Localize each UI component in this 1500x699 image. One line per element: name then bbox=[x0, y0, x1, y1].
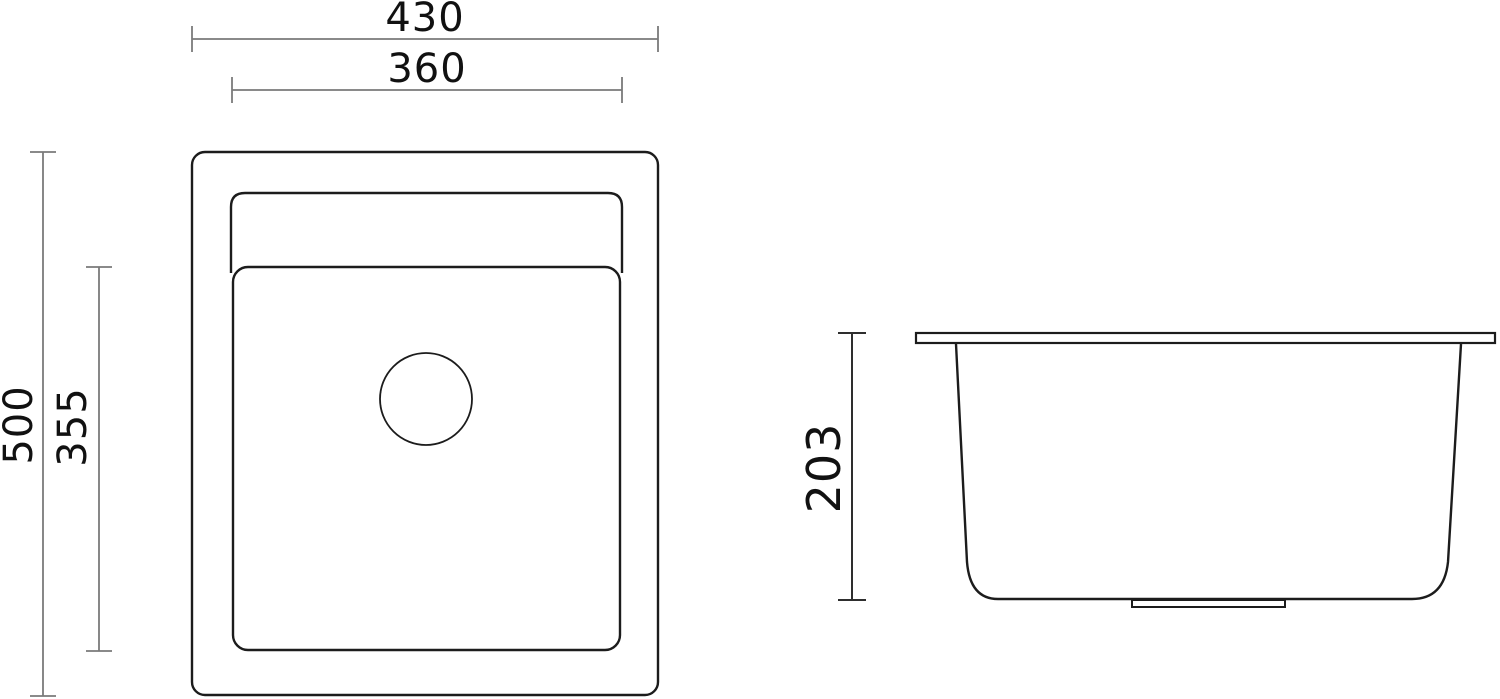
dimension-outer-width: 430 bbox=[192, 0, 658, 52]
dimension-inner-height: 355 bbox=[50, 267, 112, 651]
side-view-drain-outlet bbox=[1132, 600, 1285, 607]
dim-203-label: 203 bbox=[797, 423, 851, 514]
top-view bbox=[192, 152, 658, 695]
top-view-bowl-outline bbox=[233, 267, 620, 650]
sink-technical-drawing: 430 360 500 355 203 bbox=[0, 0, 1500, 699]
dimension-outer-height: 500 bbox=[0, 152, 56, 696]
dim-355-label: 355 bbox=[50, 387, 96, 466]
side-view bbox=[916, 333, 1495, 607]
dimension-depth: 203 bbox=[797, 333, 866, 600]
side-view-flange bbox=[916, 333, 1495, 343]
dim-430-label: 430 bbox=[385, 0, 464, 41]
dim-360-label: 360 bbox=[387, 46, 466, 92]
side-view-bowl-profile bbox=[956, 344, 1461, 599]
dim-500-label: 500 bbox=[0, 385, 42, 464]
dimension-inner-width: 360 bbox=[232, 46, 622, 103]
